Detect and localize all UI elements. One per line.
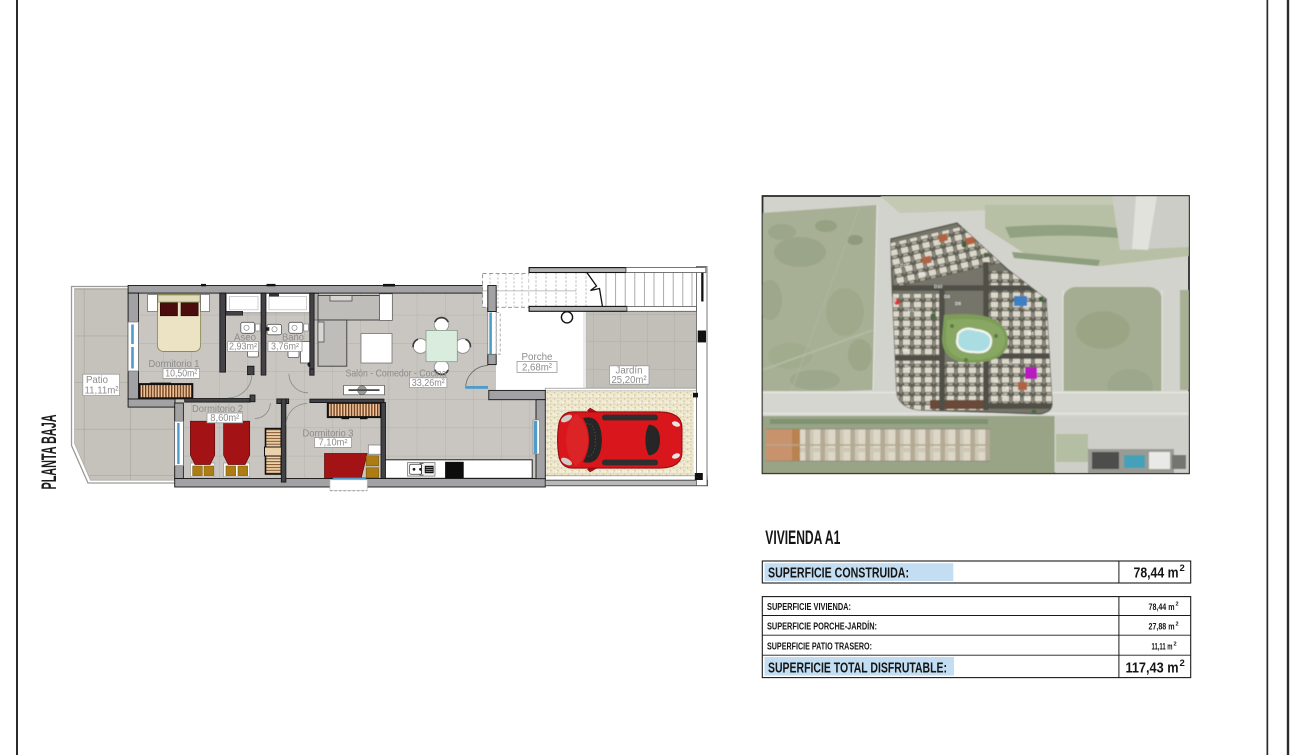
svg-text:D7: D7 (902, 385, 908, 390)
svg-text:D10: D10 (934, 284, 943, 289)
svg-text:SUPERFICIE CONSTRUIDA:: SUPERFICIE CONSTRUIDA: (768, 566, 909, 582)
svg-text:D4: D4 (905, 327, 911, 332)
svg-text:D6: D6 (905, 365, 911, 370)
svg-text:2: 2 (1176, 602, 1179, 608)
svg-text:A1: A1 (1006, 385, 1012, 390)
svg-text:D9: D9 (944, 294, 950, 299)
svg-text:33,26m²: 33,26m² (412, 378, 446, 389)
svg-text:D11: D11 (919, 271, 928, 276)
svg-text:11,11 m: 11,11 m (1152, 642, 1173, 652)
svg-text:D3: D3 (908, 308, 914, 313)
svg-text:2: 2 (1180, 658, 1185, 669)
svg-text:10,50m²: 10,50m² (165, 369, 198, 380)
svg-text:78,44 m: 78,44 m (1134, 565, 1179, 582)
svg-text:25,20m²: 25,20m² (612, 375, 648, 386)
svg-text:A2: A2 (1001, 393, 1007, 398)
svg-text:D12: D12 (900, 263, 909, 268)
svg-text:A3: A3 (1014, 394, 1020, 399)
svg-text:D5: D5 (902, 347, 908, 352)
svg-text:2,68m²: 2,68m² (522, 362, 553, 373)
svg-text:11,11m²: 11,11m² (85, 385, 120, 396)
svg-text:2,93m²: 2,93m² (229, 342, 258, 353)
svg-text:2: 2 (1174, 641, 1177, 647)
svg-text:3,76m²: 3,76m² (271, 342, 300, 353)
svg-text:D8: D8 (955, 301, 961, 306)
svg-text:7,10m²: 7,10m² (319, 438, 349, 449)
svg-text:VIVIENDA A1: VIVIENDA A1 (765, 527, 840, 549)
svg-text:A4: A4 (1024, 396, 1030, 401)
svg-text:SUPERFICIE TOTAL DISFRUTABLE:: SUPERFICIE TOTAL DISFRUTABLE: (768, 660, 947, 676)
svg-text:SUPERFICIE VIVIENDA:: SUPERFICIE VIVIENDA: (767, 602, 851, 613)
svg-text:PLANTA BAJA: PLANTA BAJA (37, 415, 61, 490)
svg-text:A7: A7 (1008, 361, 1014, 366)
svg-text:A5: A5 (994, 379, 1000, 384)
svg-text:SUPERFICIE PORCHE-JARDÍN:: SUPERFICIE PORCHE-JARDÍN: (767, 621, 877, 633)
svg-text:SUPERFICIE PATIO TRASERO:: SUPERFICIE PATIO TRASERO: (767, 642, 872, 653)
svg-text:117,43 m: 117,43 m (1126, 659, 1179, 676)
svg-text:2: 2 (1180, 563, 1185, 574)
svg-text:2: 2 (1176, 621, 1179, 627)
svg-text:8,60m²: 8,60m² (210, 413, 240, 424)
svg-text:B4: B4 (1028, 331, 1034, 336)
svg-text:B6: B6 (1023, 305, 1029, 310)
svg-text:78,44 m: 78,44 m (1149, 602, 1175, 612)
svg-text:27,88 m: 27,88 m (1149, 622, 1175, 632)
